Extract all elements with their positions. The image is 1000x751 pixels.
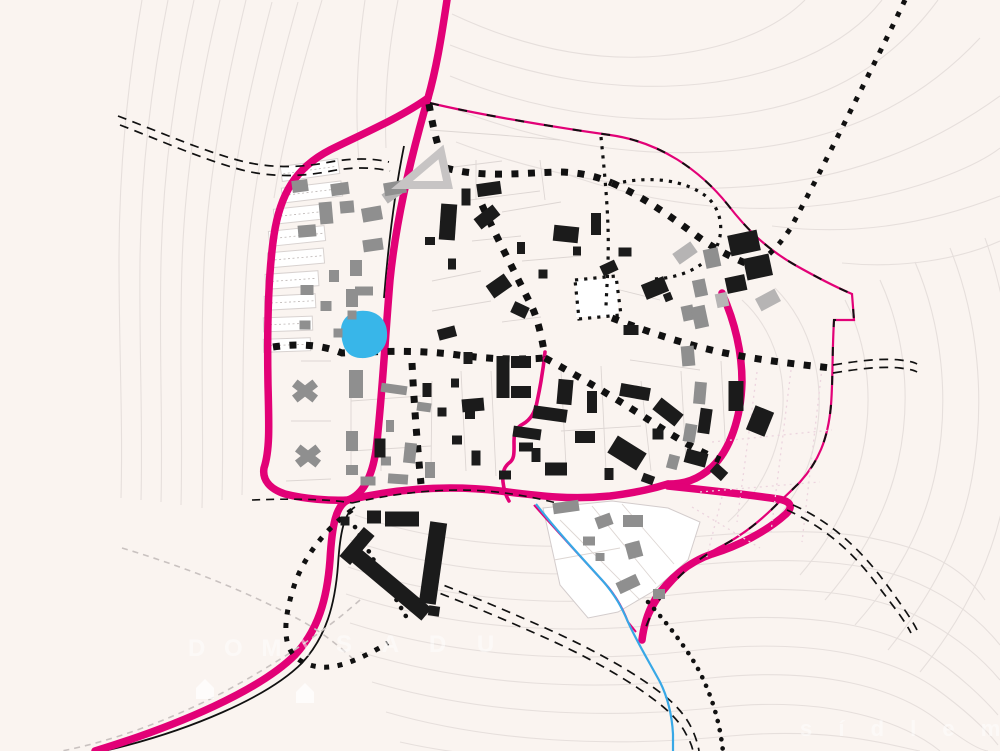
village-map-svg: D O M YS A D Us í d l e m bbox=[0, 0, 1000, 751]
building-black bbox=[539, 270, 548, 279]
building-black bbox=[472, 451, 481, 466]
building-black bbox=[587, 391, 597, 413]
building-black bbox=[428, 605, 440, 616]
building-black bbox=[464, 352, 473, 364]
building-black bbox=[729, 381, 744, 411]
building-black bbox=[519, 443, 533, 452]
building-black bbox=[619, 248, 632, 257]
building-black bbox=[511, 356, 531, 368]
building-gray bbox=[330, 182, 349, 196]
building-gray bbox=[348, 311, 357, 320]
village-plan-map: D O M YS A D Us í d l e m bbox=[0, 0, 1000, 751]
building-black bbox=[451, 379, 459, 388]
building-black bbox=[553, 225, 580, 244]
building-gray bbox=[388, 473, 409, 484]
building-black bbox=[545, 463, 567, 476]
building-gray bbox=[583, 537, 595, 546]
building-gray bbox=[291, 179, 309, 193]
building-black bbox=[461, 398, 484, 413]
building-black bbox=[425, 237, 435, 245]
building-gray bbox=[653, 589, 665, 599]
building-black bbox=[462, 189, 471, 206]
building-black bbox=[439, 203, 457, 240]
building-black bbox=[438, 408, 447, 417]
building-gray bbox=[340, 200, 355, 213]
building-black bbox=[423, 383, 432, 397]
village-square-fill bbox=[576, 279, 618, 317]
building-black bbox=[556, 379, 573, 405]
building-gray bbox=[381, 457, 391, 466]
building-black bbox=[375, 439, 386, 458]
building-gray bbox=[346, 465, 358, 475]
building-gray bbox=[403, 442, 417, 463]
building-gray bbox=[301, 285, 314, 295]
building-black bbox=[341, 517, 350, 526]
building-black bbox=[532, 448, 541, 462]
building-black bbox=[605, 468, 614, 480]
watermark-text: D O M Y bbox=[188, 635, 322, 662]
building-gray bbox=[386, 420, 394, 432]
building-gray bbox=[693, 382, 707, 405]
building-gray bbox=[425, 462, 435, 478]
building-black bbox=[573, 247, 581, 256]
building-gray bbox=[623, 515, 643, 527]
building-gray bbox=[681, 345, 696, 366]
building-gray bbox=[329, 270, 339, 282]
building-gray bbox=[346, 289, 358, 307]
building-black bbox=[385, 512, 419, 527]
building-black bbox=[499, 471, 511, 480]
building-black bbox=[624, 325, 639, 335]
village-square bbox=[576, 279, 618, 317]
building-gray bbox=[596, 553, 605, 561]
building-gray bbox=[298, 224, 317, 238]
building-black bbox=[575, 431, 595, 443]
building-black bbox=[517, 242, 525, 254]
building-gray bbox=[361, 477, 376, 486]
building-black bbox=[497, 356, 510, 398]
watermark-text: S A D U bbox=[336, 631, 506, 658]
building-black bbox=[653, 429, 664, 440]
watermark-text: s í d l e m bbox=[800, 716, 1000, 741]
building-gray bbox=[319, 201, 334, 224]
building-black bbox=[367, 511, 381, 524]
building-gray bbox=[300, 321, 311, 330]
building-gray bbox=[350, 260, 362, 276]
building-gray bbox=[321, 301, 332, 311]
building-black bbox=[591, 213, 601, 235]
building-gray bbox=[346, 431, 358, 451]
building-black bbox=[452, 436, 462, 445]
building-gray bbox=[349, 370, 363, 398]
building-black bbox=[448, 259, 456, 270]
building-black bbox=[511, 386, 531, 398]
building-gray bbox=[334, 329, 343, 338]
